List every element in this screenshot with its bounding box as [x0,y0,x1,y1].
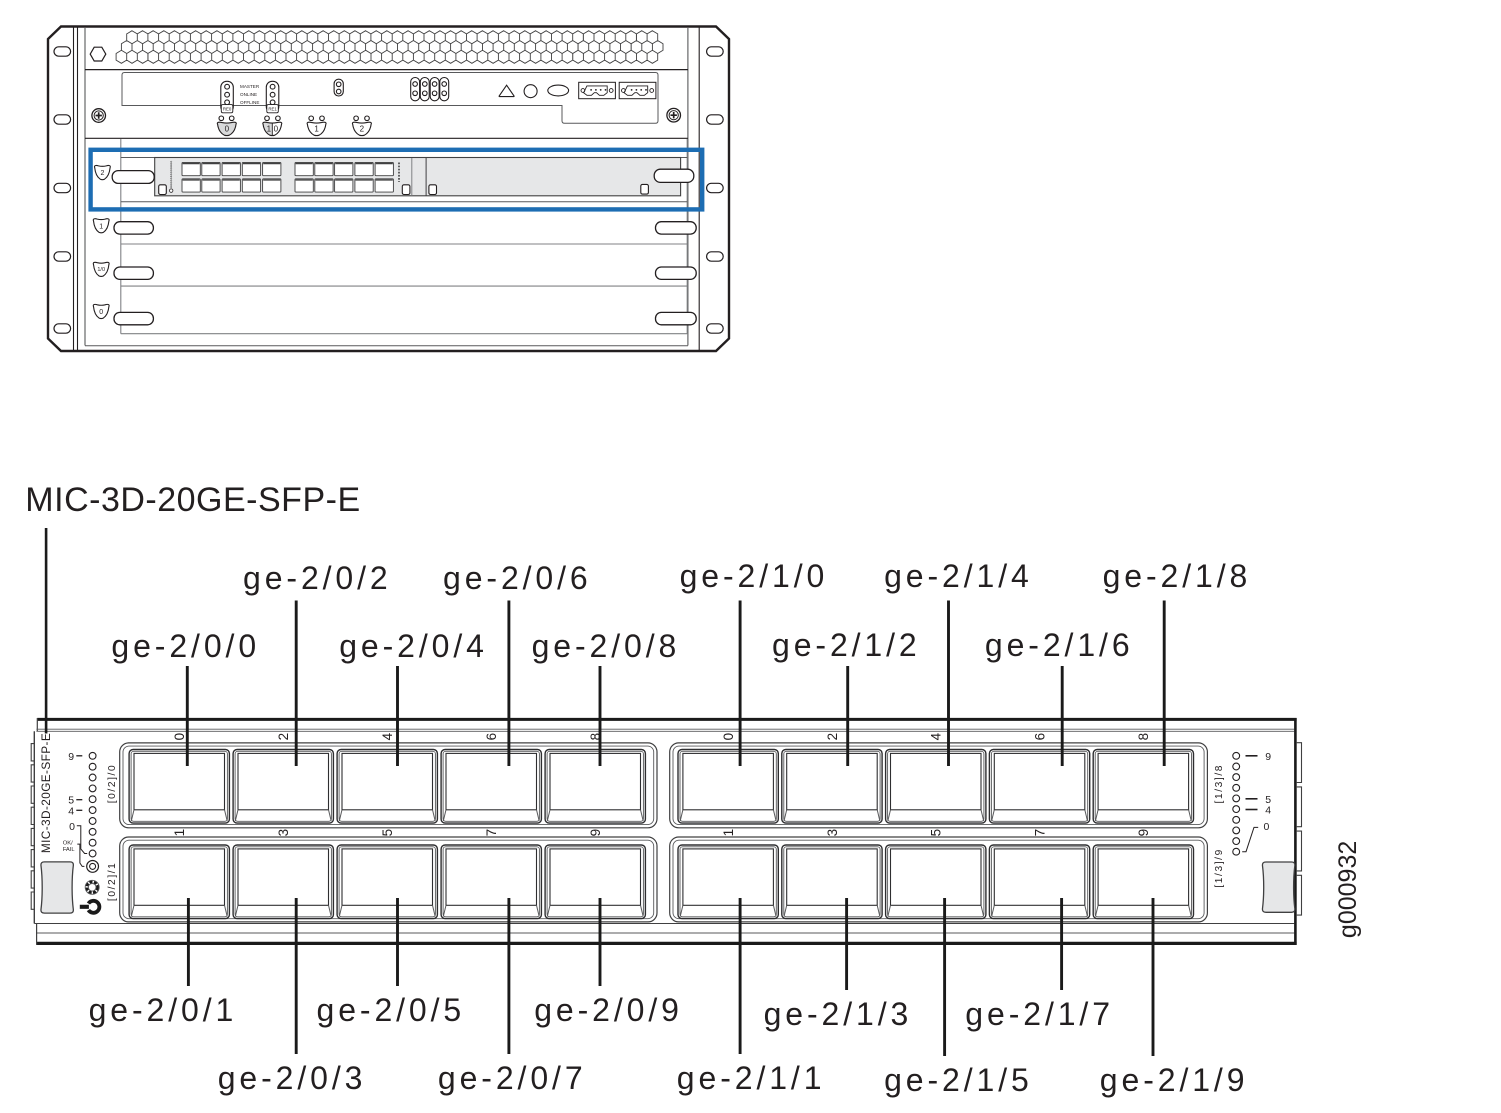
svg-text:ge-2/0/7: ge-2/0/7 [438,1060,587,1096]
svg-text:1: 1 [99,223,103,230]
svg-text:7: 7 [484,829,499,837]
svg-text:ONLINE: ONLINE [240,92,257,97]
svg-text:0: 0 [1263,821,1269,833]
svg-text:OK/: OK/ [63,841,73,847]
svg-text:1: 1 [267,125,272,134]
svg-text:ge-2/0/2: ge-2/0/2 [243,560,392,596]
svg-text:1: 1 [314,125,319,134]
svg-text:0: 0 [99,309,103,316]
svg-text:1: 1 [172,829,187,837]
svg-text:OFFLINE: OFFLINE [240,100,259,105]
svg-text:ge-2/0/4: ge-2/0/4 [339,628,488,664]
svg-text:[1/3]/9: [1/3]/9 [1214,848,1225,888]
svg-text:6: 6 [1032,733,1047,741]
svg-text:g000932: g000932 [1334,841,1362,938]
svg-text:3: 3 [825,829,840,837]
svg-text:RE1: RE1 [268,107,277,112]
svg-text:0: 0 [225,125,230,134]
svg-text:ge-2/0/9: ge-2/0/9 [534,992,683,1028]
svg-text:2: 2 [100,170,104,177]
svg-text:0: 0 [69,821,75,833]
svg-text:[0/2]/0: [0/2]/0 [107,764,118,804]
svg-text:1: 1 [721,829,736,837]
svg-text:ge-2/0/1: ge-2/0/1 [89,992,238,1028]
svg-text:ge-2/0/5: ge-2/0/5 [317,992,466,1028]
svg-text:ge-2/1/0: ge-2/1/0 [680,558,829,594]
svg-text:1/0: 1/0 [97,267,105,273]
svg-text:ge-2/1/5: ge-2/1/5 [884,1062,1033,1098]
svg-text:MIC-3D-20GE-SFP-E: MIC-3D-20GE-SFP-E [39,733,53,853]
svg-text:ge-2/1/6: ge-2/1/6 [985,627,1134,663]
svg-text:3: 3 [276,829,291,837]
svg-text:ge-2/0/3: ge-2/0/3 [218,1060,367,1096]
svg-text:ge-2/1/9: ge-2/1/9 [1100,1062,1249,1098]
svg-text:4: 4 [1265,805,1271,817]
svg-text:ge-2/1/4: ge-2/1/4 [884,558,1033,594]
svg-text:[1/3]/8: [1/3]/8 [1214,764,1225,804]
svg-text:4: 4 [929,732,944,740]
svg-text:6: 6 [484,733,499,741]
svg-text:FAIL: FAIL [63,847,76,853]
svg-text:0: 0 [721,733,736,741]
svg-text:ge-2/1/2: ge-2/1/2 [772,627,921,663]
svg-text:8: 8 [1136,733,1151,741]
svg-text:[0/2]/1: [0/2]/1 [107,862,118,902]
svg-text:ge-2/0/6: ge-2/0/6 [443,560,592,596]
svg-text:7: 7 [1032,829,1047,837]
svg-text:9: 9 [68,751,74,763]
svg-text:4: 4 [68,805,74,817]
svg-text:2: 2 [276,733,291,741]
svg-text:9: 9 [1265,751,1271,763]
svg-text:MIC-3D-20GE-SFP-E: MIC-3D-20GE-SFP-E [25,481,360,519]
svg-text:5: 5 [380,829,395,837]
svg-text:2: 2 [360,125,365,134]
svg-text:ge-2/0/0: ge-2/0/0 [111,628,260,664]
svg-text:0: 0 [274,125,279,134]
svg-text:4: 4 [380,732,395,740]
svg-text:ge-2/1/1: ge-2/1/1 [677,1060,826,1096]
svg-text:9: 9 [1136,829,1151,837]
svg-text:ge-2/1/3: ge-2/1/3 [764,996,913,1032]
svg-text:5: 5 [929,829,944,837]
svg-text:RE0: RE0 [223,107,232,112]
svg-text:MASTER: MASTER [240,84,260,89]
svg-text:ge-2/0/8: ge-2/0/8 [532,628,681,664]
svg-text:ge-2/1/7: ge-2/1/7 [965,996,1114,1032]
svg-text:2: 2 [825,733,840,741]
svg-text:ge-2/1/8: ge-2/1/8 [1103,558,1252,594]
svg-text:9: 9 [588,829,603,837]
svg-text:0: 0 [172,733,187,741]
